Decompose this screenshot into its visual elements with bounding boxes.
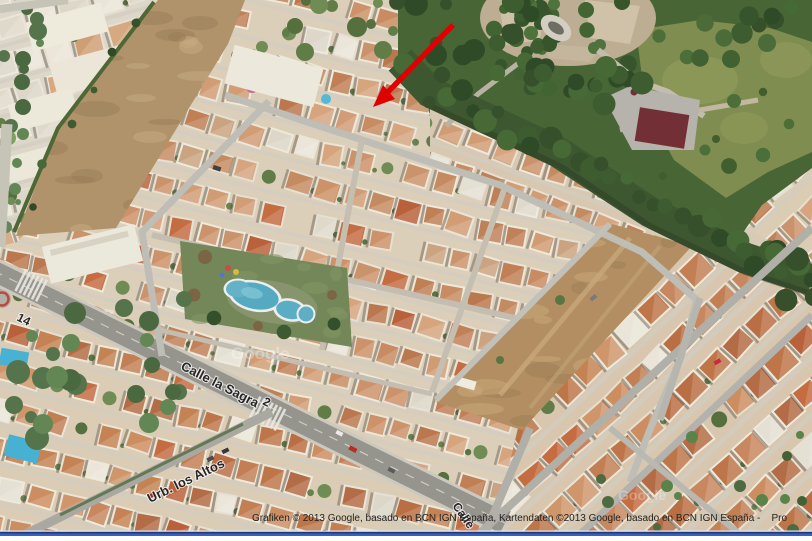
svg-text:Grafiken © 2013 Google, basado: Grafiken © 2013 Google, basado en BCN IG… [252,513,787,524]
svg-text:Google: Google [618,487,666,503]
svg-text:Google: Google [231,344,290,363]
